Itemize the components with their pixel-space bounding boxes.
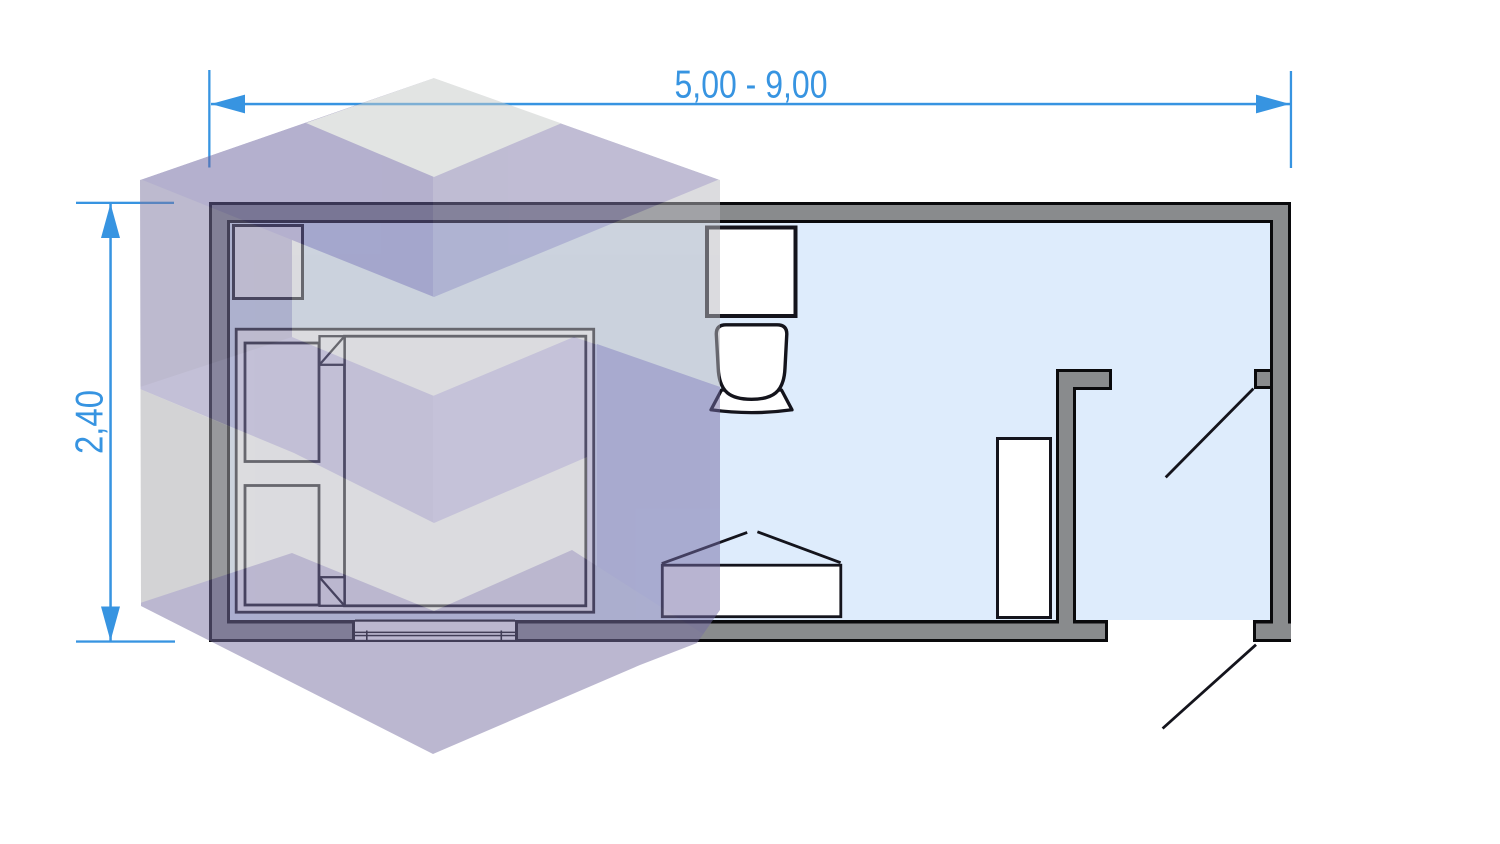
svg-text:2,40: 2,40: [69, 390, 112, 454]
svg-text:5,00 - 9,00: 5,00 - 9,00: [675, 64, 828, 107]
